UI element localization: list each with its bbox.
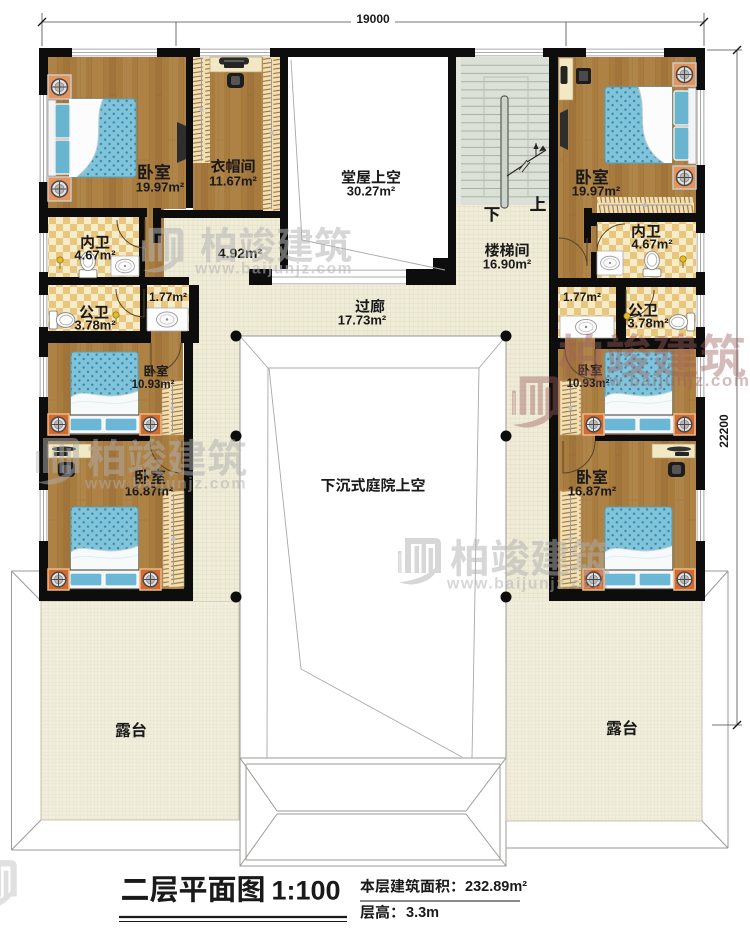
svg-text:22200: 22200 [717, 414, 731, 448]
svg-text:www.baijunjz.com: www.baijunjz.com [84, 476, 247, 493]
svg-text:30.27m²: 30.27m² [347, 184, 396, 199]
svg-text:19000: 19000 [356, 12, 390, 26]
svg-text:1.77m²: 1.77m² [563, 290, 601, 304]
svg-text:1:100: 1:100 [271, 876, 340, 906]
svg-text:4.67m²: 4.67m² [631, 237, 673, 252]
svg-text:www.baijunjz.com: www.baijunjz.com [579, 371, 750, 390]
svg-text:19.97m²: 19.97m² [136, 180, 185, 195]
svg-text:16.90m²: 16.90m² [483, 257, 532, 272]
svg-text:19.97m²: 19.97m² [572, 184, 621, 199]
svg-text:4.67m²: 4.67m² [74, 248, 116, 263]
svg-text:10.93m²: 10.93m² [132, 379, 175, 391]
svg-text:16.87m²: 16.87m² [568, 484, 617, 499]
svg-text:3.78m²: 3.78m² [74, 318, 116, 333]
svg-text:www.baijunjz.com: www.baijunjz.com [446, 576, 609, 593]
svg-text:11.67m²: 11.67m² [209, 174, 257, 189]
svg-text:3.78m²: 3.78m² [627, 316, 669, 331]
svg-text:17.73m²: 17.73m² [338, 313, 387, 328]
svg-text:1.77m²: 1.77m² [149, 290, 187, 304]
svg-text:www.baijunjz.com: www.baijunjz.com [194, 260, 353, 277]
svg-text:3.3m: 3.3m [406, 905, 439, 921]
svg-text:232.89m²: 232.89m² [465, 879, 527, 895]
